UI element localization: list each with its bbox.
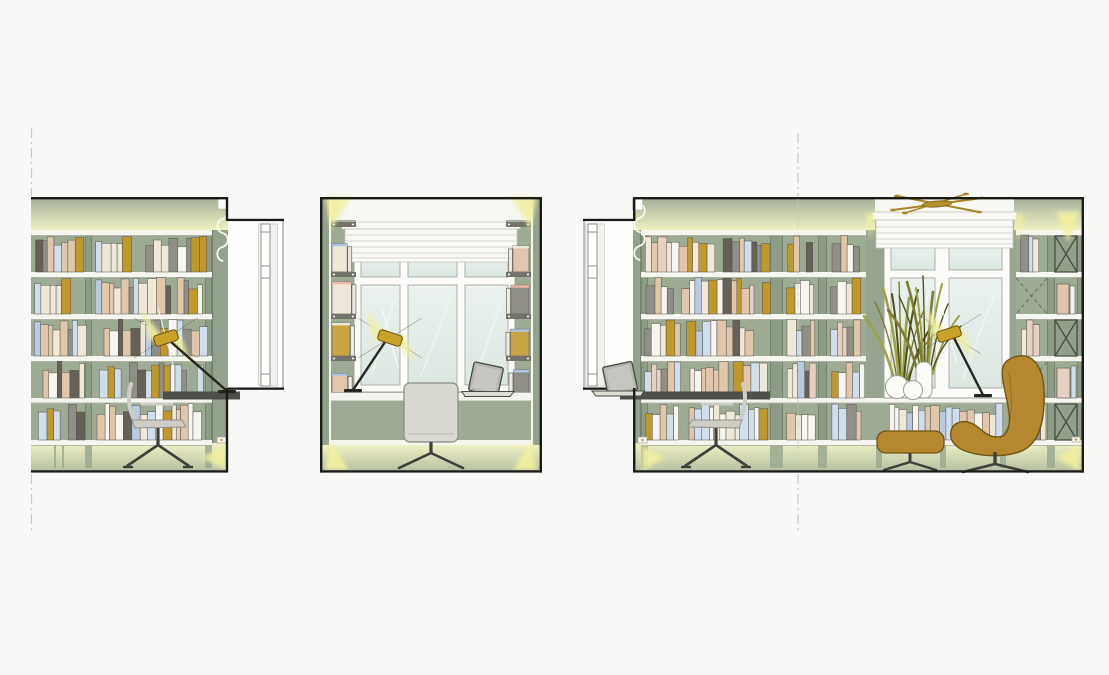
interior-elevations-svg	[0, 0, 1109, 675]
wall-socket	[1072, 437, 1080, 442]
x-door-cell	[1055, 404, 1077, 440]
wall-socket	[638, 437, 647, 443]
wall-socket	[217, 437, 226, 443]
roman-blind	[872, 212, 1017, 248]
x-door-cell	[1055, 320, 1077, 356]
desk-nook-elevation	[320, 197, 542, 473]
door-reveal	[228, 219, 284, 390]
elevation-drawing-canvas	[0, 0, 1109, 675]
window-wall-elevation	[583, 193, 1084, 473]
roller-blind	[342, 222, 520, 262]
x-door-cell	[1055, 236, 1077, 272]
